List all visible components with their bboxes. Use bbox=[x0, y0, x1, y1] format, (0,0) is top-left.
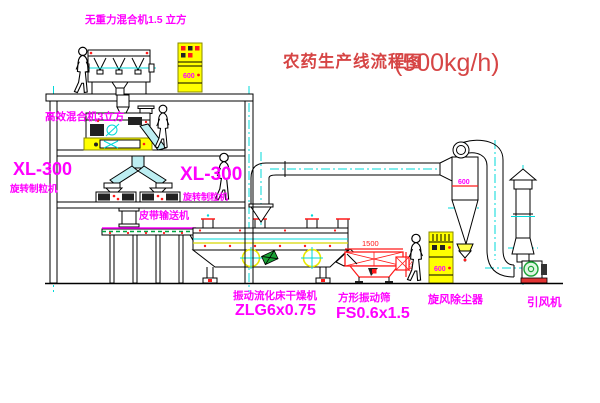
exhaust-duct bbox=[249, 157, 452, 222]
sieve-model-label: FS0.6x1.5 bbox=[336, 305, 410, 322]
belt-conveyor bbox=[102, 228, 204, 283]
control-cabinet-top: 600 bbox=[178, 43, 202, 92]
gravity-mixer-label: 无重力混合机1.5 立方 bbox=[84, 13, 187, 26]
granulator-right bbox=[140, 188, 180, 202]
exhaust-stack bbox=[510, 169, 536, 262]
title-capacity: (500kg/h) bbox=[394, 49, 500, 77]
sieve-width-dim: 1500 bbox=[362, 239, 379, 248]
fan-label: 引风机 bbox=[527, 295, 562, 309]
granulator-left bbox=[96, 188, 136, 202]
cabinet-right-tag: 600 bbox=[434, 266, 446, 273]
process-flow-diagram: 600 bbox=[0, 0, 600, 403]
cyclone-dim-label: 600 bbox=[458, 179, 470, 186]
gravity-mixer bbox=[82, 50, 156, 95]
dryer-top-nozzles bbox=[201, 214, 350, 228]
cabinet-top-tag: 600 bbox=[183, 73, 195, 80]
granulator-name-left: 旋转制粒机 bbox=[9, 183, 58, 195]
sieve-name-label: 方形振动筛 bbox=[338, 291, 391, 304]
induced-draft-fan bbox=[521, 261, 547, 283]
granulator-name-right: 旋转制粒机 bbox=[182, 191, 228, 202]
dryer-model-label: ZLG6x0.75 bbox=[235, 302, 316, 319]
diagram-canvas: 600 bbox=[0, 0, 600, 403]
vibrating-sieve: 1500 350 bbox=[345, 239, 414, 284]
dryer-name-label: 振动流化床干燥机 bbox=[233, 289, 317, 302]
worker-second-floor bbox=[155, 105, 169, 148]
fluid-bed-dryer bbox=[193, 214, 356, 283]
granulator-model-left: XL-300 bbox=[13, 159, 72, 179]
cyclone-label: 旋风除尘器 bbox=[427, 292, 484, 306]
y-feed-pipe bbox=[104, 156, 172, 188]
granulator-model-right: XL-300 bbox=[180, 164, 242, 185]
belt-conveyor-label: 皮带输送机 bbox=[138, 209, 189, 222]
worker-ground bbox=[408, 234, 423, 280]
worker-top-floor bbox=[74, 47, 89, 92]
high-eff-mixer-label: 高效混合机3立方 bbox=[45, 110, 125, 123]
cyclone-separator: 600 bbox=[452, 142, 478, 262]
discharge-down-pipe bbox=[119, 208, 139, 227]
cyclone-inlet-reducer bbox=[440, 157, 452, 181]
control-cabinet-right: 600 bbox=[429, 232, 453, 283]
